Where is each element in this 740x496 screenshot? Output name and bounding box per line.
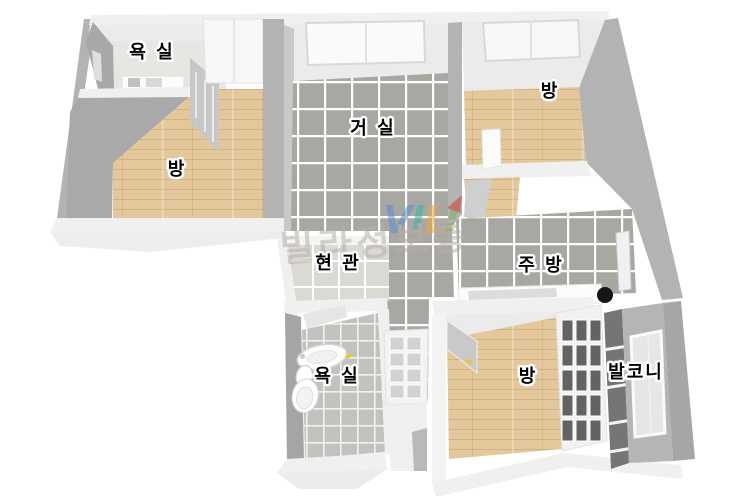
label-balcony: 발코니 bbox=[608, 362, 664, 383]
bathroom-bottom bbox=[277, 298, 393, 489]
kitchen-stove bbox=[597, 287, 613, 303]
label-room-bottom-right: 방 bbox=[519, 366, 538, 387]
label-bathroom-bottom: 욕 실 bbox=[314, 366, 359, 387]
label-room-left: 방 bbox=[168, 159, 187, 180]
room-br-west-wall bbox=[432, 315, 446, 483]
bathroom-top-sink bbox=[128, 78, 140, 87]
room-left-south-base bbox=[50, 232, 284, 252]
balcony bbox=[603, 301, 695, 469]
kitchen-side-door bbox=[616, 231, 631, 291]
bathroom-top-window bbox=[92, 50, 102, 82]
label-kitchen: 주 방 bbox=[518, 255, 563, 276]
bathroom-top-fixture bbox=[146, 78, 162, 87]
corridor-window-unit bbox=[384, 329, 428, 471]
label-bathroom-top: 욕 실 bbox=[129, 42, 174, 63]
room-br-south-wall bbox=[432, 453, 567, 496]
room-left-south-wall bbox=[50, 218, 284, 232]
label-living-room: 거 실 bbox=[350, 118, 395, 139]
corridor-wall-wedge bbox=[412, 428, 427, 471]
room-tr-door-open bbox=[482, 129, 501, 169]
floor-plan-svg: V I L 빌라정보통 욕 실 방 거 실 방 현 관 주 방 욕 실 방 발코… bbox=[0, 0, 740, 496]
label-entrance: 현 관 bbox=[315, 253, 360, 274]
bathroom-top-south-wall bbox=[78, 87, 190, 98]
room-br-window-panes bbox=[562, 320, 601, 441]
label-room-top-right: 방 bbox=[541, 81, 560, 102]
floor-plan-image: V I L 빌라정보통 욕 실 방 거 실 방 현 관 주 방 욕 실 방 발코… bbox=[0, 0, 740, 496]
closet-top bbox=[203, 19, 263, 83]
wall-room-left-living bbox=[263, 19, 284, 232]
